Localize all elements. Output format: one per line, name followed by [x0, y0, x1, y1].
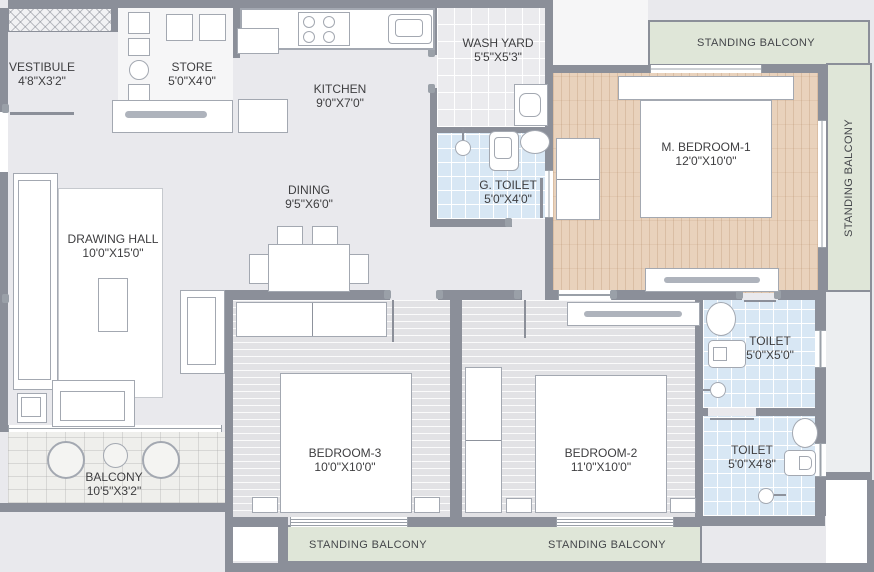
room-label-drawing-hall: DRAWING HALL 10'0"X15'0" — [68, 232, 159, 260]
room-dims: 5'0"X4'0" — [479, 192, 537, 206]
shower-arm — [700, 389, 710, 391]
room-dims: 9'0"X7'0" — [314, 96, 367, 110]
room-dims: 5'0"X5'0" — [746, 348, 794, 362]
wardrobe-divider — [466, 440, 501, 441]
wall-segment — [553, 65, 650, 73]
wc-icon — [784, 450, 816, 476]
bedside-table — [506, 498, 532, 513]
room-label-vestibule: VESTIBULE 4'8"X3'2" — [9, 60, 75, 88]
shower-icon — [758, 488, 774, 504]
wall-segment — [815, 477, 826, 516]
wall-segment — [225, 563, 874, 572]
dresser — [567, 302, 700, 326]
room-name: TOILET — [746, 334, 794, 348]
shaft-hatch — [8, 8, 112, 32]
burner-icon — [303, 31, 315, 43]
round-chair — [142, 441, 180, 479]
wc-tank — [713, 347, 727, 361]
toilet-common-window — [815, 443, 826, 477]
room-label-master-bedroom: M. BEDROOM-1 12'0"X10'0" — [661, 140, 750, 168]
sofa — [52, 380, 135, 427]
store-cabinet — [199, 14, 226, 41]
bedside-table — [414, 497, 440, 513]
dining-chair — [277, 226, 303, 245]
wall-segment — [8, 0, 553, 8]
master-bedroom-door-opening — [558, 290, 612, 300]
wall-segment — [762, 65, 826, 73]
round-chair — [47, 441, 85, 479]
washbasin-icon — [792, 418, 818, 448]
room-label-wash-yard: WASH YARD 5'5"X5'3" — [462, 36, 533, 64]
bed-headboard — [618, 76, 794, 100]
room-name: DRAWING HALL — [68, 232, 159, 246]
corner-table-top — [21, 397, 41, 417]
room-name: WASH YARD — [462, 36, 533, 50]
wall-segment — [112, 8, 118, 32]
toilet-common-door-leaf — [710, 418, 754, 420]
room-name: KITCHEN — [314, 82, 367, 96]
bedroom2-door-leaf — [524, 300, 526, 338]
dining-chair — [249, 254, 269, 284]
counter-shelf — [125, 111, 207, 118]
door-jamb — [514, 290, 521, 299]
cabinet — [237, 28, 279, 54]
store-shelf — [128, 38, 150, 56]
wall-segment — [815, 300, 826, 330]
master-bedroom-balcony-window — [818, 120, 826, 248]
label-standing-balcony-right: STANDING BALCONY — [843, 119, 855, 237]
door-jamb — [428, 84, 435, 93]
label-standing-balcony-bottom-left: STANDING BALCONY — [309, 539, 427, 551]
corner-table — [17, 393, 47, 423]
room-name: TOILET — [728, 443, 776, 457]
bedside-table — [670, 498, 696, 513]
room-dims: 5'5"X5'3" — [462, 50, 533, 64]
armchair-seat — [187, 297, 216, 365]
room-dims: 10'0"X15'0" — [68, 246, 159, 260]
room-dims: 10'5"X3'2" — [85, 484, 142, 498]
armchair — [180, 290, 225, 374]
washbasin-icon — [706, 302, 736, 336]
toilet-master-window — [815, 330, 826, 368]
wall-segment — [695, 516, 825, 526]
g-toilet-door-leaf — [540, 178, 543, 218]
wc-seat — [494, 137, 512, 159]
wall-segment — [818, 248, 826, 294]
room-name: VESTIBULE — [9, 60, 75, 74]
wall-segment — [818, 73, 826, 120]
g-toilet-door-opening — [545, 170, 553, 218]
wc-icon — [489, 131, 519, 171]
dresser-mirror — [664, 277, 760, 283]
dresser-mirror — [584, 311, 682, 317]
room-label-toilet-common: TOILET 5'0"X4'8" — [728, 443, 776, 471]
wardrobe-divider — [557, 179, 599, 180]
wc-seat — [799, 456, 812, 470]
wall-segment — [408, 517, 556, 527]
room-label-dining: DINING 9'5"X6'0" — [285, 183, 333, 211]
room-name: DINING — [285, 183, 333, 197]
bed — [280, 373, 412, 513]
dresser — [645, 268, 779, 292]
door-jamb — [2, 294, 9, 303]
shower-icon — [455, 140, 471, 156]
wardrobe — [556, 138, 600, 220]
kitchen-side-counter — [112, 100, 233, 133]
room-dims: 10'0"X10'0" — [309, 460, 382, 474]
side-strip — [826, 292, 872, 472]
wall-segment — [450, 290, 462, 517]
room-label-kitchen: KITCHEN 9'0"X7'0" — [314, 82, 367, 110]
room-label-balcony: BALCONY 10'5"X3'2" — [85, 470, 142, 498]
master-bedroom-window — [650, 65, 762, 73]
wall-segment — [0, 8, 8, 432]
label-standing-balcony-top: STANDING BALCONY — [697, 37, 815, 49]
wall-segment — [0, 503, 228, 512]
room-dims: 5'0"X4'8" — [728, 457, 776, 471]
washing-machine-drum — [519, 93, 541, 117]
outside-pocket — [553, 0, 648, 65]
washbasin-icon — [520, 130, 550, 154]
store-stool — [129, 60, 149, 80]
bed — [535, 375, 667, 513]
room-name: G. TOILET — [479, 178, 537, 192]
room-name: BEDROOM-3 — [309, 446, 382, 460]
room-name: BALCONY — [85, 470, 142, 484]
shower-icon — [710, 382, 726, 398]
wall-segment — [778, 290, 826, 300]
shower-arm — [462, 128, 464, 140]
room-name: M. BEDROOM-1 — [661, 140, 750, 154]
room-label-bedroom2: BEDROOM-2 11'0"X10'0" — [565, 446, 638, 474]
floor-plan: VESTIBULE 4'8"X3'2" STORE 5'0"X4'0" KITC… — [0, 0, 874, 572]
bedside-table — [252, 497, 278, 513]
stove-icon — [298, 12, 350, 46]
sofa-seat — [18, 180, 51, 380]
label-standing-balcony-bottom-right: STANDING BALCONY — [548, 539, 666, 551]
room-label-bedroom3: BEDROOM-3 10'0"X10'0" — [309, 446, 382, 474]
room-dims: 4'8"X3'2" — [9, 74, 75, 88]
room-dims: 9'5"X6'0" — [285, 197, 333, 211]
door-jamb — [384, 290, 391, 299]
round-table — [103, 443, 128, 468]
wc-icon — [708, 340, 746, 368]
wall-segment — [278, 517, 288, 563]
main-door-opening — [0, 112, 8, 172]
door-jamb — [610, 290, 617, 299]
bedroom3-balcony-window — [290, 517, 408, 527]
room-label-store: STORE 5'0"X4'0" — [168, 60, 216, 88]
refrigerator-icon — [238, 99, 288, 133]
room-dims: 11'0"X10'0" — [565, 460, 638, 474]
wall-segment — [695, 408, 708, 416]
sink-basin — [395, 19, 423, 37]
washing-machine-icon — [514, 84, 548, 126]
toilet-master-door-leaf — [744, 300, 776, 302]
door-jamb — [2, 104, 9, 113]
store-cabinet — [166, 14, 193, 41]
dining-chair — [312, 226, 338, 245]
duct-shaft — [826, 480, 867, 563]
wall-segment — [826, 472, 872, 480]
sofa-seat — [60, 391, 125, 421]
dining-table — [268, 244, 350, 292]
shower-arm — [774, 494, 786, 496]
wardrobe-divider — [312, 303, 313, 336]
wall-segment — [867, 480, 874, 563]
duct-shaft — [233, 527, 278, 561]
wall-segment — [430, 133, 437, 219]
bedroom3-door-leaf — [392, 300, 394, 342]
coffee-table — [98, 278, 128, 332]
door-jamb — [436, 290, 443, 299]
burner-icon — [323, 16, 335, 28]
wall-segment — [545, 218, 553, 300]
room-label-toilet-master: TOILET 5'0"X5'0" — [746, 334, 794, 362]
sink-icon — [388, 14, 432, 44]
room-dims: 5'0"X4'0" — [168, 74, 216, 88]
room-dims: 12'0"X10'0" — [661, 154, 750, 168]
room-name: BEDROOM-2 — [565, 446, 638, 460]
bedroom2-balcony-window — [556, 517, 674, 527]
wall-segment — [548, 290, 558, 300]
wall-segment — [430, 219, 512, 227]
wardrobe — [465, 367, 502, 513]
room-name: STORE — [168, 60, 216, 74]
burner-icon — [323, 31, 335, 43]
room-label-g-toilet: G. TOILET 5'0"X4'0" — [479, 178, 537, 206]
dining-chair — [349, 254, 369, 284]
door-jamb — [505, 218, 512, 227]
main-door-leaf — [10, 112, 74, 115]
burner-icon — [303, 16, 315, 28]
wardrobe — [236, 302, 387, 337]
sofa — [13, 173, 58, 390]
store-shelf — [128, 12, 150, 34]
